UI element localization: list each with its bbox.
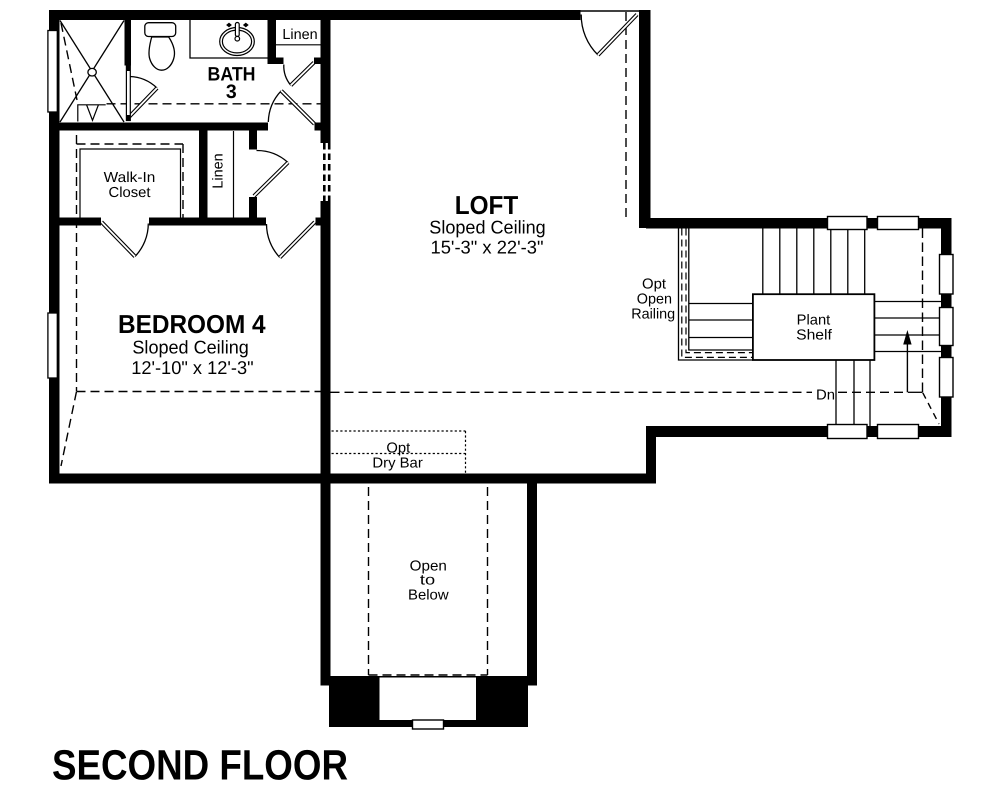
svg-text:to: to [420, 573, 435, 589]
svg-text:12'-10" x 12'-3": 12'-10" x 12'-3" [131, 357, 253, 378]
svg-text:Dn: Dn [816, 388, 835, 404]
svg-text:Below: Below [408, 588, 449, 604]
svg-text:3: 3 [226, 81, 237, 103]
svg-text:Opt: Opt [642, 277, 666, 293]
svg-text:Sloped Ceiling: Sloped Ceiling [429, 217, 545, 238]
svg-text:Walk-In: Walk-In [104, 170, 156, 186]
svg-text:Linen: Linen [282, 27, 317, 43]
svg-text:Plant: Plant [797, 313, 831, 329]
svg-text:LOFT: LOFT [455, 190, 519, 220]
svg-text:Railing: Railing [631, 307, 675, 323]
svg-text:SECOND FLOOR: SECOND FLOOR [52, 743, 348, 790]
svg-text:Opt: Opt [386, 441, 410, 457]
svg-text:Open: Open [637, 292, 672, 308]
svg-text:Dry Bar: Dry Bar [372, 456, 423, 472]
svg-text:15'-3" x 22'-3": 15'-3" x 22'-3" [431, 237, 544, 258]
svg-text:Sloped Ceiling: Sloped Ceiling [132, 337, 248, 358]
svg-text:Linen: Linen [211, 153, 227, 188]
svg-text:Shelf: Shelf [796, 328, 833, 344]
svg-text:Closet: Closet [109, 185, 151, 201]
svg-text:BEDROOM 4: BEDROOM 4 [118, 309, 266, 339]
